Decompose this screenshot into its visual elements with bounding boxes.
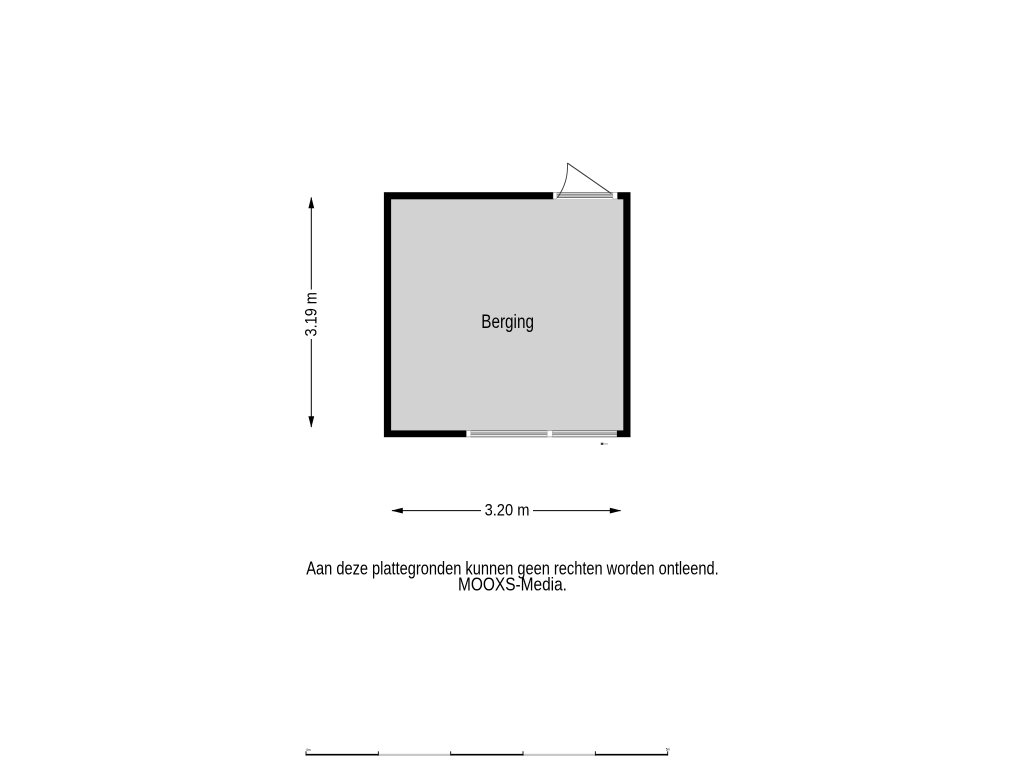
svg-text:Berging: Berging bbox=[481, 310, 534, 332]
svg-text:MOOXS-Media.: MOOXS-Media. bbox=[458, 574, 567, 595]
svg-text:0m: 0m bbox=[306, 748, 310, 752]
svg-text:3.20 m: 3.20 m bbox=[485, 502, 530, 520]
svg-text:3.19 m: 3.19 m bbox=[302, 292, 320, 336]
svg-text:5m: 5m bbox=[666, 747, 670, 751]
